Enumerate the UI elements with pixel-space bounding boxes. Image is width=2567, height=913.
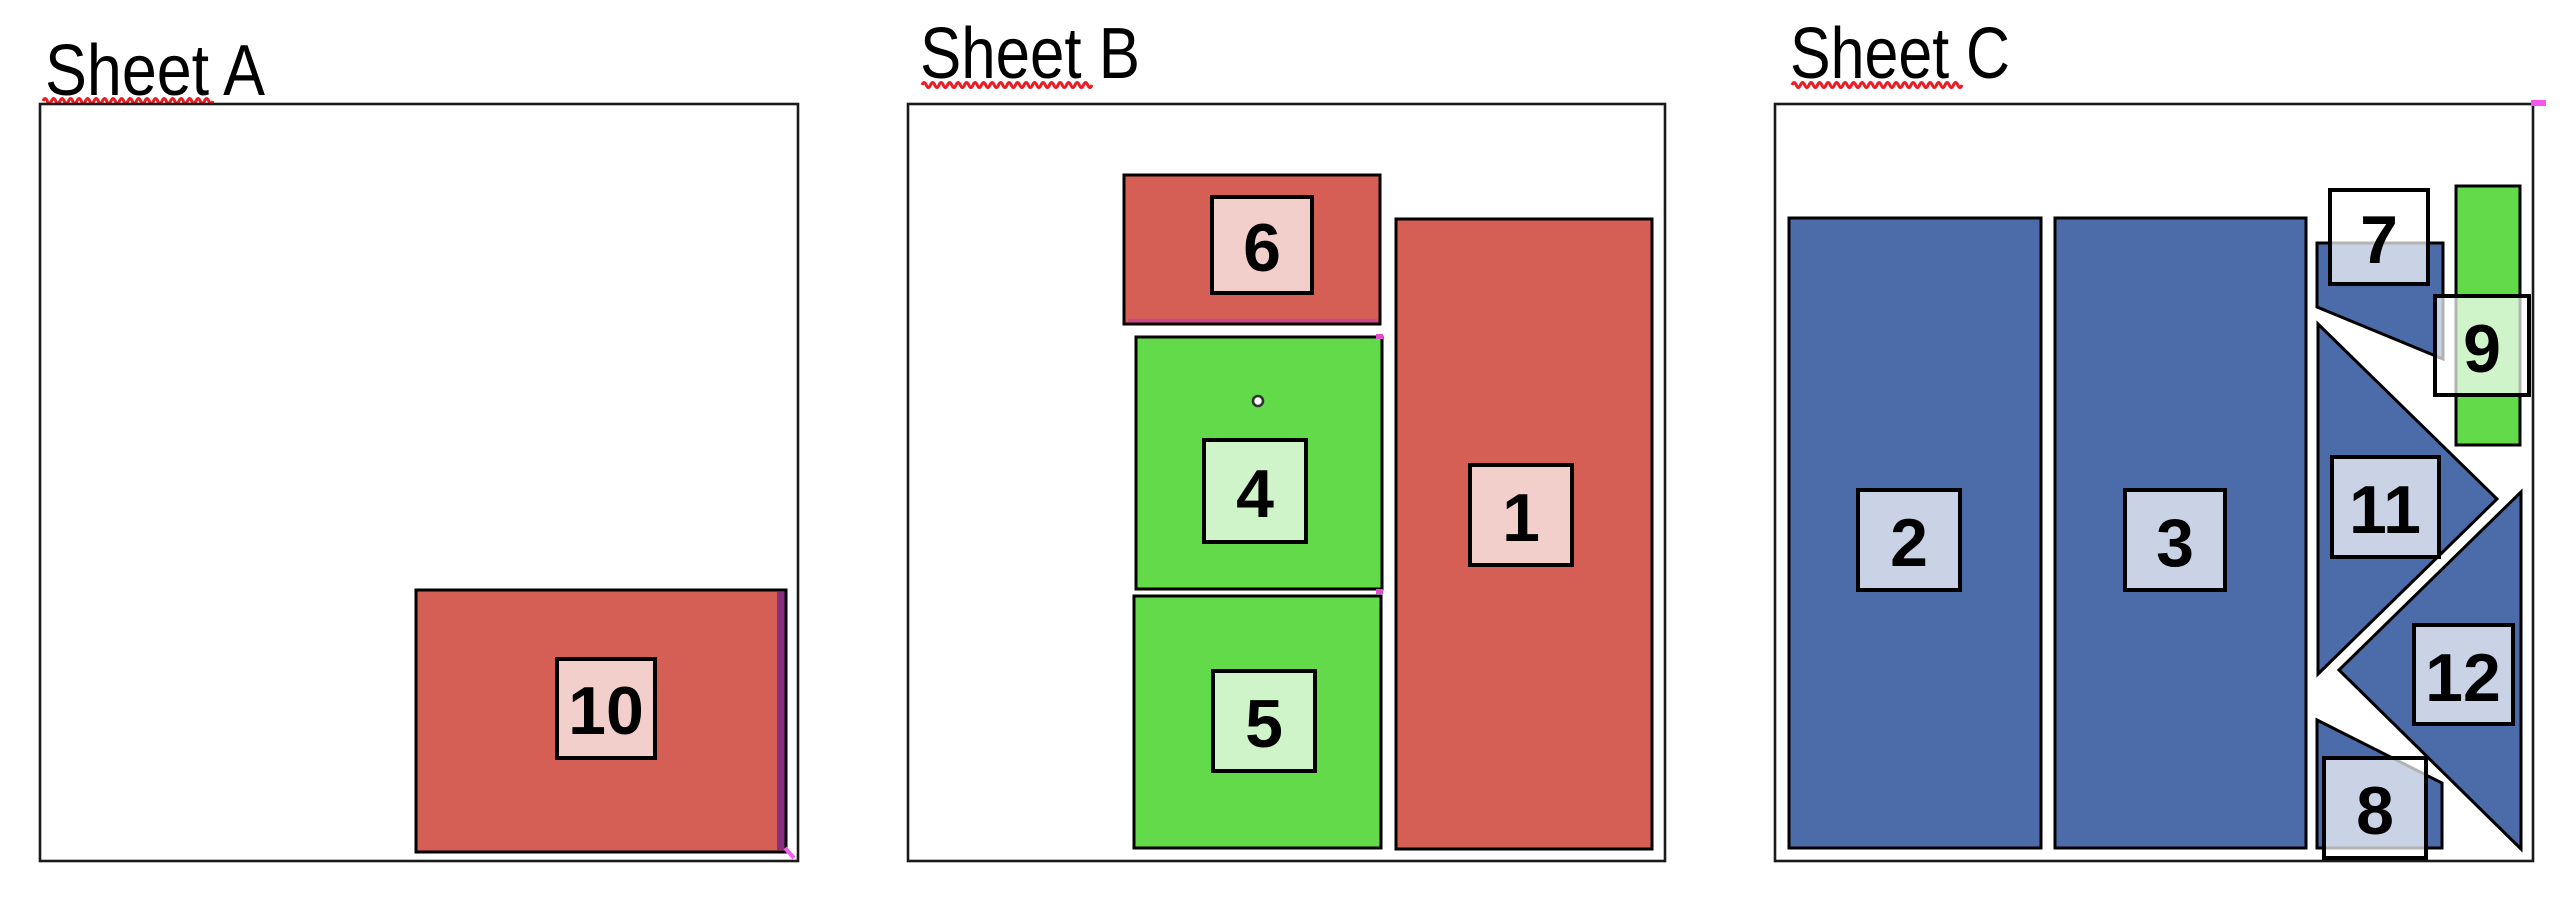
svg-text:2: 2 (1890, 505, 1928, 581)
svg-text:9: 9 (2463, 311, 2501, 387)
svg-text:Sheet C: Sheet C (1790, 14, 2010, 94)
svg-text:10: 10 (568, 673, 644, 749)
svg-text:11: 11 (2349, 472, 2421, 548)
svg-text:3: 3 (2156, 505, 2194, 581)
svg-text:Sheet B: Sheet B (920, 14, 1140, 94)
svg-text:4: 4 (1236, 456, 1274, 532)
svg-text:8: 8 (2356, 773, 2394, 849)
svg-text:6: 6 (1243, 210, 1281, 286)
svg-text:7: 7 (2360, 202, 2398, 278)
svg-text:1: 1 (1502, 480, 1540, 556)
svg-text:5: 5 (1245, 686, 1283, 762)
svg-text:12: 12 (2425, 640, 2501, 716)
